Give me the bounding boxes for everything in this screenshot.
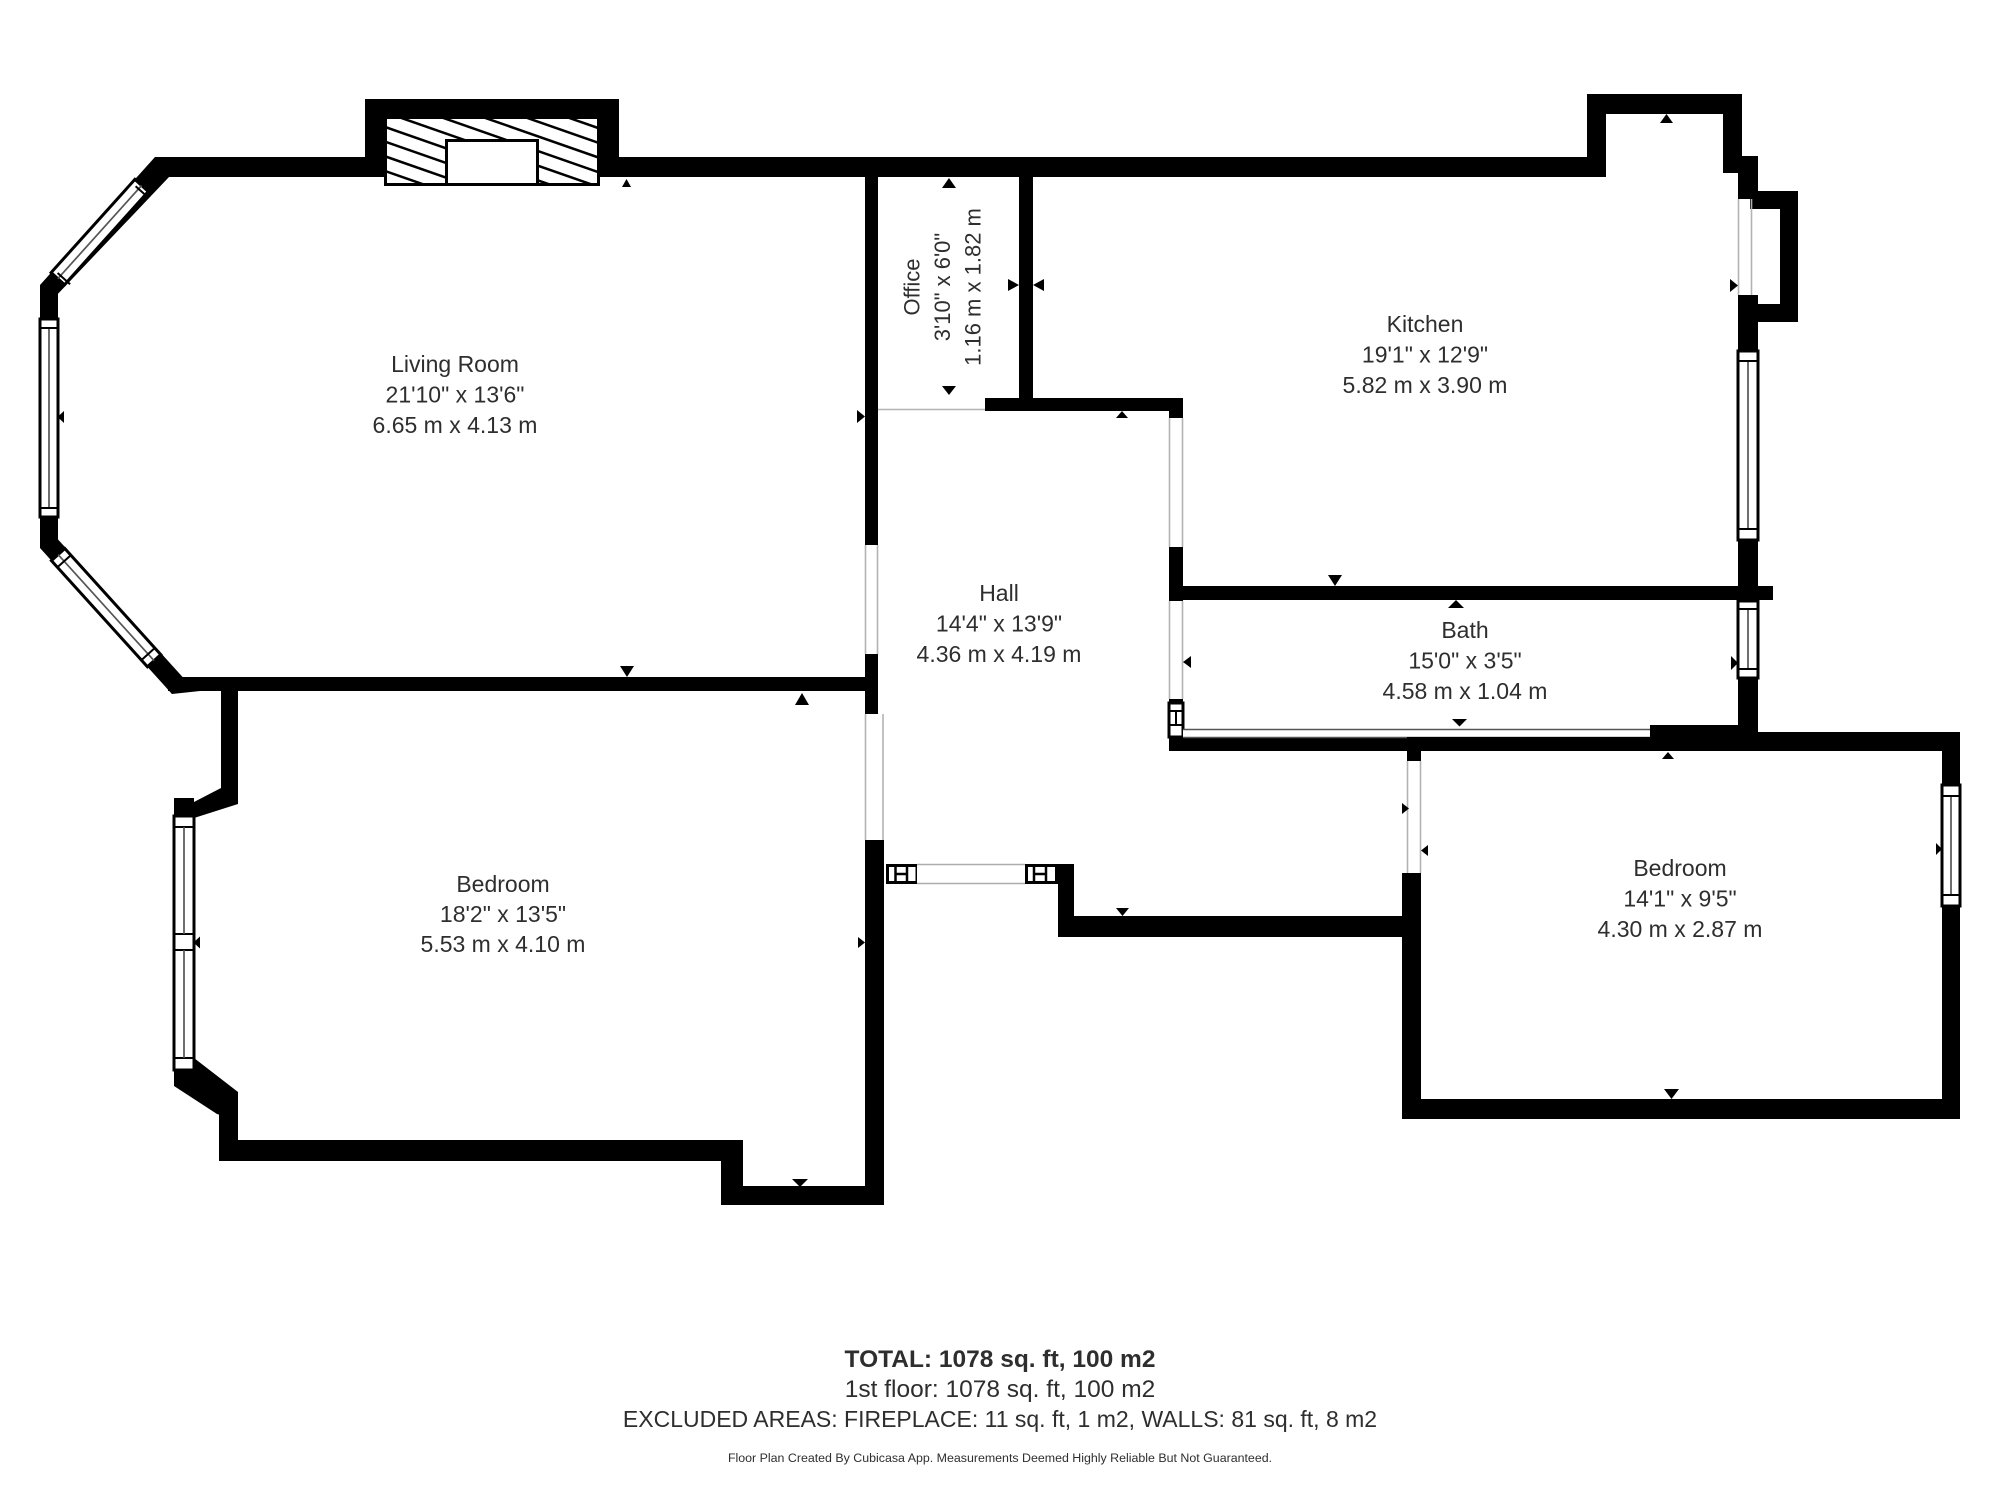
svg-text:TOTAL: 1078 sq. ft, 100 m2: TOTAL: 1078 sq. ft, 100 m2 (845, 1346, 1156, 1373)
svg-text:14'4" x 13'9": 14'4" x 13'9" (936, 611, 1062, 637)
svg-text:Office: Office (900, 258, 925, 315)
svg-text:15'0" x 3'5": 15'0" x 3'5" (1408, 648, 1521, 674)
svg-text:Bedroom: Bedroom (1633, 855, 1726, 881)
svg-text:14'1" x 9'5": 14'1" x 9'5" (1623, 886, 1736, 912)
svg-text:19'1" x 12'9": 19'1" x 12'9" (1362, 342, 1488, 368)
svg-text:Bedroom: Bedroom (456, 871, 549, 897)
svg-text:3'10" x 6'0": 3'10" x 6'0" (930, 233, 955, 341)
svg-text:4.30 m x 2.87 m: 4.30 m x 2.87 m (1598, 916, 1763, 942)
svg-text:1st floor: 1078 sq. ft, 100 m2: 1st floor: 1078 sq. ft, 100 m2 (845, 1376, 1156, 1403)
svg-text:5.82 m x 3.90 m: 5.82 m x 3.90 m (1343, 372, 1508, 398)
svg-text:4.58 m x 1.04 m: 4.58 m x 1.04 m (1383, 678, 1548, 704)
svg-text:Bath: Bath (1441, 617, 1488, 643)
svg-text:Floor Plan Created By Cubicasa: Floor Plan Created By Cubicasa App. Meas… (728, 1451, 1272, 1465)
svg-text:Living Room: Living Room (391, 351, 519, 377)
svg-text:4.36 m x 4.19 m: 4.36 m x 4.19 m (917, 641, 1082, 667)
svg-text:6.65 m x 4.13 m: 6.65 m x 4.13 m (373, 412, 538, 438)
svg-text:5.53 m x 4.10 m: 5.53 m x 4.10 m (421, 931, 586, 957)
svg-text:Hall: Hall (979, 580, 1019, 606)
svg-text:EXCLUDED AREAS: FIREPLACE: 11: EXCLUDED AREAS: FIREPLACE: 11 sq. ft, 1 … (623, 1406, 1377, 1432)
svg-text:1.16 m x 1.82 m: 1.16 m x 1.82 m (961, 208, 986, 366)
svg-text:18'2" x 13'5": 18'2" x 13'5" (440, 901, 566, 927)
svg-text:Kitchen: Kitchen (1387, 311, 1464, 337)
svg-text:21'10" x 13'6": 21'10" x 13'6" (386, 382, 525, 408)
